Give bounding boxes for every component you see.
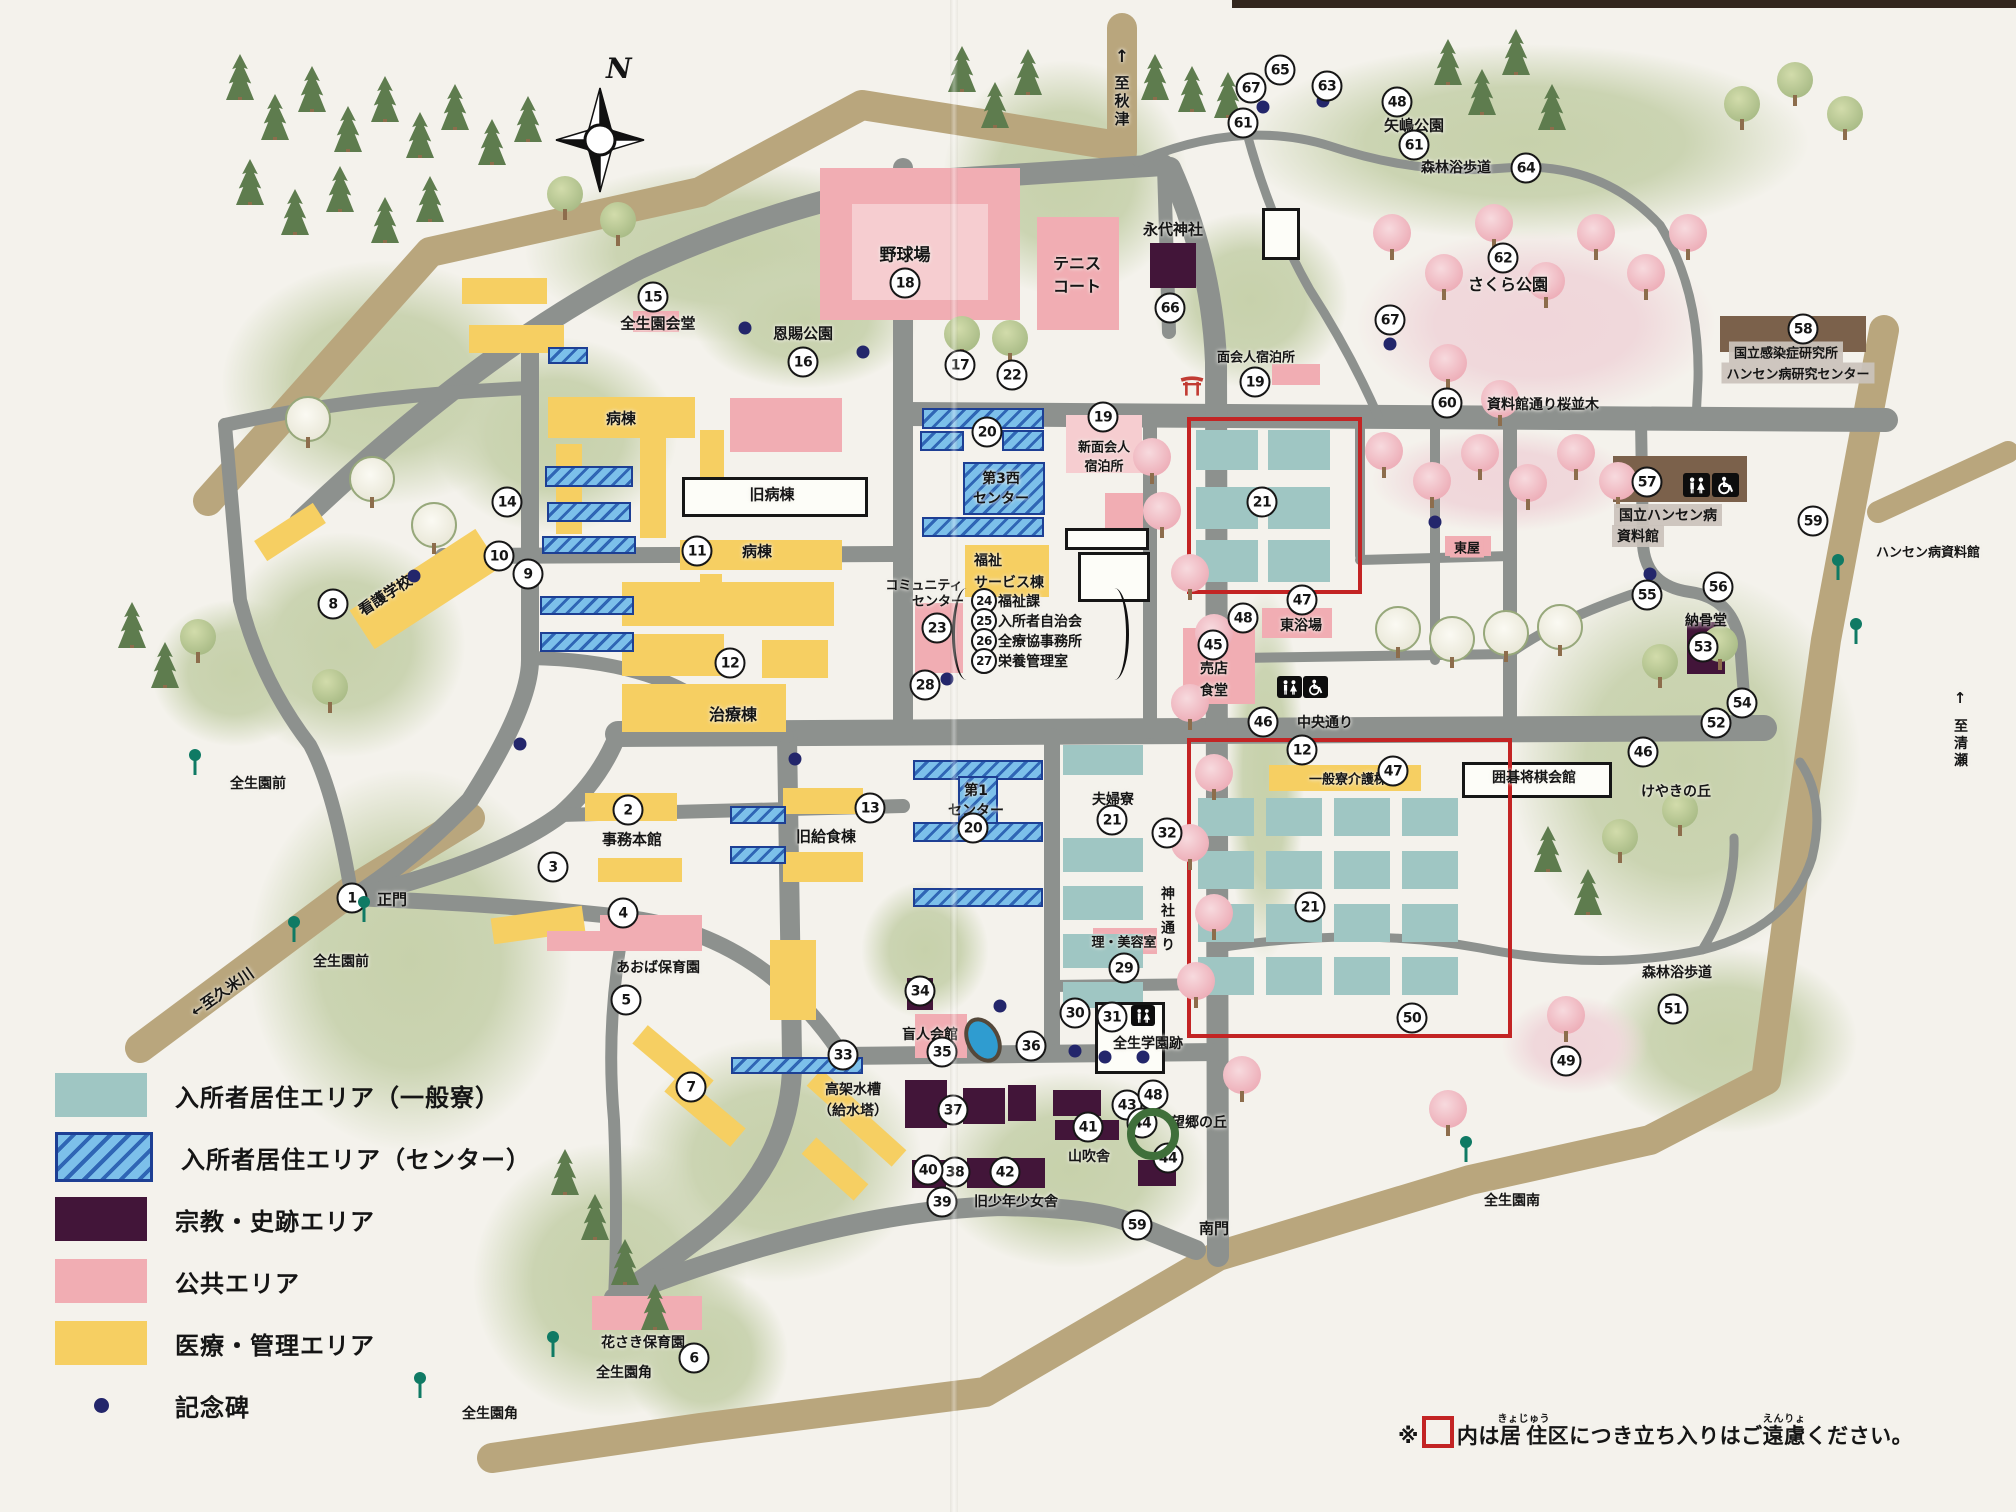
place-label: 東浴場: [1280, 615, 1322, 635]
building-stripe: [1002, 430, 1044, 451]
place-label: 病棟: [742, 541, 772, 562]
legend-swatch-pink: [55, 1259, 147, 1303]
round-tree-icon: [1642, 644, 1678, 680]
map-marker-51: 51: [1658, 994, 1689, 1025]
place-label: 囲碁将棋会館: [1492, 767, 1576, 787]
map-marker-2: 2: [613, 795, 644, 826]
round-tree-icon: [1777, 62, 1813, 98]
building-teal: [1063, 886, 1143, 920]
map-marker-47: 47: [1378, 756, 1409, 787]
round-tree-icon: [312, 669, 348, 705]
place-label: 納骨堂: [1685, 610, 1727, 630]
place-label: あおば保育園: [616, 957, 700, 977]
cherry-tree-icon: [1509, 464, 1547, 502]
building-stripe: [730, 806, 786, 824]
legend-swatch-dotbox: [55, 1383, 147, 1427]
place-label: 全生園角: [596, 1362, 652, 1382]
building-yellow: [770, 940, 816, 1020]
building-purple: [1150, 243, 1196, 288]
building-stripe: [542, 536, 636, 554]
legend: 入所者居住エリア（一般寮）入所者居住エリア（センター）宗教・史跡エリア公共エリア…: [55, 1072, 531, 1444]
map-marker-42: 42: [990, 1157, 1021, 1188]
place-label: けやきの丘: [1641, 781, 1711, 801]
map-marker-20: 20: [958, 813, 989, 844]
place-label: 旧給食棟: [796, 826, 856, 847]
building-stripe: [540, 596, 634, 615]
place-label: 至秋津: [1112, 75, 1133, 129]
place-label: ↑: [1115, 47, 1129, 67]
bus-stop-icon: [1460, 1136, 1472, 1162]
round-tree-icon: [1724, 86, 1760, 122]
building-purple: [1008, 1085, 1036, 1121]
map-marker-53: 53: [1688, 632, 1719, 663]
map-marker-54: 54: [1727, 688, 1758, 719]
map-marker-62: 62: [1488, 243, 1519, 274]
map-marker-19: 19: [1088, 402, 1119, 433]
map-marker-33: 33: [828, 1040, 859, 1071]
place-label: 旧少年少女舎: [974, 1191, 1058, 1211]
white-tree-icon: [349, 456, 395, 502]
place-label: 売店: [1200, 658, 1228, 678]
map-marker-67: 67: [1236, 73, 1267, 104]
legend-swatch-stripe: [55, 1132, 153, 1182]
cherry-tree-icon: [1365, 432, 1403, 470]
cherry-tree-icon: [1177, 962, 1215, 1000]
memorial-monument-dot: [739, 322, 752, 335]
cherry-tree-icon: [1413, 462, 1451, 500]
building-yellow: [783, 852, 863, 882]
compass-star-icon: [540, 80, 660, 200]
map-marker-21: 21: [1247, 487, 1278, 518]
place-label: 入所者自治会: [998, 611, 1082, 631]
map-marker-16: 16: [788, 347, 819, 378]
place-label: 東屋: [1450, 537, 1484, 558]
place-label: 福祉課: [998, 591, 1040, 611]
map-marker-10: 10: [484, 541, 515, 572]
place-label: 第1: [964, 780, 988, 800]
building-stripe: [730, 846, 786, 864]
building-yellow: [622, 684, 786, 732]
white-tree-icon: [1375, 606, 1421, 652]
memorial-monument-dot: [1137, 1051, 1150, 1064]
memorial-monument-dot: [408, 570, 421, 583]
place-label: 森林浴歩道: [1421, 157, 1491, 177]
place-label: 全生園会堂: [620, 313, 695, 334]
map-marker-12: 12: [715, 648, 746, 679]
wheelchair-icon: [1303, 676, 1328, 698]
place-label: 神社通り: [1157, 886, 1177, 954]
building-stripe: [540, 632, 634, 652]
bus-stop-icon: [547, 1331, 559, 1357]
place-label: 山吹舎: [1068, 1146, 1110, 1166]
map-marker-27: 27: [971, 648, 997, 674]
note-text: ください。: [1806, 1424, 1914, 1448]
memorial-wreath-hill-icon: [1127, 1108, 1179, 1160]
building-yellow: [622, 634, 724, 676]
white-tree-icon: [411, 502, 457, 548]
building-yellow: [783, 788, 863, 814]
map-marker-7: 7: [676, 1072, 707, 1103]
place-label: コート: [1053, 273, 1101, 297]
place-label: 国立感染症研究所: [1729, 342, 1843, 363]
memorial-monument-dot: [994, 1000, 1007, 1013]
map-marker-59: 59: [1798, 506, 1829, 537]
map-marker-21: 21: [1097, 805, 1128, 836]
compass-rose: N: [540, 52, 670, 202]
place-label: 南門: [1199, 1218, 1229, 1239]
building-stripe: [922, 517, 1044, 537]
map-marker-48: 48: [1382, 87, 1413, 118]
memorial-dot-icon: [94, 1398, 109, 1413]
legend-item: 入所者居住エリア（センター）: [55, 1134, 531, 1180]
map-marker-49: 49: [1551, 1046, 1582, 1077]
map-marker-19: 19: [1240, 367, 1271, 398]
building-yellow: [762, 640, 828, 678]
map-marker-22: 22: [997, 360, 1028, 391]
legend-item: 入所者居住エリア（一般寮）: [55, 1072, 531, 1118]
bus-stop-icon: [1850, 618, 1862, 644]
map-marker-6: 6: [679, 1343, 710, 1374]
map-marker-46: 46: [1628, 737, 1659, 768]
map-marker-52: 52: [1701, 708, 1732, 739]
cherry-tree-icon: [1577, 214, 1615, 252]
place-label: 事務本館: [602, 829, 662, 850]
map-marker-21: 21: [1295, 892, 1326, 923]
round-tree-icon: [992, 320, 1028, 356]
map-marker-13: 13: [855, 793, 886, 824]
memorial-monument-dot: [514, 738, 527, 751]
legend-label: 医療・管理エリア: [175, 1326, 375, 1361]
map-marker-30: 30: [1060, 998, 1091, 1029]
cherry-tree-icon: [1429, 1090, 1467, 1128]
map-marker-4: 4: [608, 898, 639, 929]
residential-area-note: ※内は居住きょじゅう区につき立ち入りはご遠慮えんりょください。: [1398, 1414, 1913, 1450]
map-marker-61: 61: [1228, 108, 1259, 139]
map-marker-31: 31: [1097, 1002, 1128, 1033]
place-label: 第3西: [982, 468, 1020, 488]
building-pink: [1272, 364, 1320, 385]
place-label: 花さき保育園: [601, 1332, 685, 1352]
cherry-tree-icon: [1195, 894, 1233, 932]
place-label: 高架水槽: [825, 1079, 881, 1099]
white-tree-icon: [1483, 610, 1529, 656]
map-marker-40: 40: [913, 1155, 944, 1186]
cherry-tree-icon: [1461, 434, 1499, 472]
place-label: 全生園南: [1484, 1190, 1540, 1210]
building-teal: [1063, 838, 1143, 872]
cherry-tree-icon: [1143, 492, 1181, 530]
map-marker-50: 50: [1397, 1003, 1428, 1034]
round-tree-icon: [180, 619, 216, 655]
cherry-tree-icon: [1557, 434, 1595, 472]
place-label: 全療協事務所: [998, 631, 1082, 651]
map-marker-28: 28: [910, 670, 941, 701]
map-marker-8: 8: [318, 589, 349, 620]
place-label: 治療棟: [709, 701, 757, 725]
memorial-monument-dot: [1099, 1051, 1112, 1064]
building-pink: [730, 398, 842, 452]
cherry-tree-icon: [1547, 996, 1585, 1034]
place-label: テニス: [1053, 250, 1101, 274]
place-label: 資料館: [1612, 525, 1664, 547]
legend-label: 記念碑: [175, 1388, 250, 1423]
map-marker-67: 67: [1375, 305, 1406, 336]
map-marker-66: 66: [1155, 293, 1186, 324]
place-label: 全生園前: [313, 951, 369, 971]
map-marker-9: 9: [513, 559, 544, 590]
memorial-monument-dot: [1069, 1045, 1082, 1058]
building-white: [1262, 208, 1300, 260]
legend-swatch-purple: [55, 1197, 147, 1241]
map-marker-58: 58: [1788, 314, 1819, 345]
bus-stop-icon: [358, 896, 370, 922]
red-box-glyph: [1422, 1416, 1454, 1448]
place-label: 理・美容室: [1091, 932, 1156, 951]
bus-stop-icon: [1832, 554, 1844, 580]
map-marker-23: 23: [922, 613, 953, 644]
memorial-monument-dot: [1257, 101, 1270, 114]
map-marker-64: 64: [1511, 153, 1542, 184]
round-tree-icon: [600, 202, 636, 238]
map-marker-5: 5: [611, 985, 642, 1016]
map-marker-61: 61: [1399, 130, 1430, 161]
building-stripe: [545, 466, 633, 487]
building-yellow: [462, 278, 547, 304]
legend-label: 宗教・史跡エリア: [175, 1202, 375, 1237]
white-tree-icon: [1537, 604, 1583, 650]
legend-item: 公共エリア: [55, 1258, 531, 1304]
map-marker-36: 36: [1016, 1031, 1047, 1062]
cherry-tree-icon: [1133, 438, 1171, 476]
map-marker-12: 12: [1287, 735, 1318, 766]
place-label: 野球場: [880, 241, 931, 266]
map-marker-45: 45: [1198, 630, 1229, 661]
map-marker-34: 34: [905, 976, 936, 1007]
place-label: 病棟: [606, 408, 636, 429]
place-label: 福祉: [974, 550, 1002, 570]
map-marker-20: 20: [972, 417, 1003, 448]
place-label: ハンセン病研究センター: [1721, 363, 1874, 384]
torii-icon: [1180, 376, 1204, 396]
place-label: 恩賜公園: [773, 323, 833, 344]
place-label: ↑: [1954, 689, 1967, 707]
place-label: 永代神社: [1143, 219, 1203, 240]
map-marker-47: 47: [1287, 585, 1318, 616]
place-label: 全生学園跡: [1113, 1033, 1183, 1053]
cherry-tree-icon: [1475, 204, 1513, 242]
place-label: 森林浴歩道: [1642, 962, 1712, 982]
place-label: 至清瀬: [1950, 719, 1970, 770]
building-stripe: [548, 347, 588, 364]
cherry-tree-icon: [1669, 214, 1707, 252]
legend-swatch-teal: [55, 1073, 147, 1117]
legend-item: 宗教・史跡エリア: [55, 1196, 531, 1242]
cherry-tree-icon: [1425, 254, 1463, 292]
map-marker-15: 15: [638, 282, 669, 313]
map-marker-3: 3: [538, 852, 569, 883]
legend-label: 入所者居住エリア（センター）: [181, 1140, 531, 1175]
cherry-tree-icon: [1373, 214, 1411, 252]
cherry-tree-icon: [1627, 254, 1665, 292]
cherry-tree-icon: [1171, 554, 1209, 592]
bus-stop-icon: [189, 749, 201, 775]
building-purple: [963, 1088, 1005, 1124]
bus-stop-icon: [288, 916, 300, 942]
building-yellow: [598, 858, 682, 882]
building-teal: [1063, 745, 1143, 775]
map-marker-48: 48: [1138, 1080, 1169, 1111]
memorial-monument-dot: [857, 346, 870, 359]
building-white: [1065, 528, 1149, 550]
note-ruby-text: 遠慮えんりょ: [1763, 1424, 1806, 1448]
map-marker-46: 46: [1248, 707, 1279, 738]
map-marker-56: 56: [1703, 572, 1734, 603]
round-tree-icon: [1827, 96, 1863, 132]
map-marker-18: 18: [890, 268, 921, 299]
place-label: 一般寮介護棟: [1309, 769, 1387, 788]
memorial-monument-dot: [1384, 338, 1397, 351]
place-label: 新面会人: [1078, 437, 1130, 456]
cherry-tree-icon: [1223, 1056, 1261, 1094]
legend-item: 記念碑: [55, 1382, 531, 1428]
building-stripe: [913, 888, 1043, 907]
map-marker-57: 57: [1632, 467, 1663, 498]
note-text: 内は: [1457, 1424, 1500, 1448]
place-label: 資料館通り桜並木: [1487, 394, 1599, 414]
building-pink: [547, 931, 601, 951]
map-marker-60: 60: [1432, 388, 1463, 419]
map-marker-29: 29: [1109, 953, 1140, 984]
legend-label: 入所者居住エリア（一般寮）: [175, 1078, 500, 1113]
place-label: 正門: [377, 889, 407, 910]
white-tree-icon: [1429, 616, 1475, 662]
map-marker-41: 41: [1073, 1112, 1104, 1143]
cherry-tree-icon: [1195, 754, 1233, 792]
list-bracket-right: [1100, 588, 1129, 680]
map-marker-55: 55: [1632, 580, 1663, 611]
map-page: N 12345678910111212131415161718191920202…: [0, 0, 2016, 1512]
toilet-icon: [1277, 676, 1302, 698]
map-marker-11: 11: [682, 536, 713, 567]
place-label: 国立ハンセン病: [1614, 504, 1722, 526]
place-label: 面会人宿泊所: [1217, 347, 1295, 366]
map-marker-63: 63: [1312, 71, 1343, 102]
map-marker-59: 59: [1122, 1210, 1153, 1241]
legend-item: 医療・管理エリア: [55, 1320, 531, 1366]
memorial-monument-dot: [1429, 516, 1442, 529]
white-tree-icon: [285, 396, 331, 442]
place-label: （給水塔）: [818, 1100, 888, 1120]
place-label: 食堂: [1200, 680, 1228, 700]
place-label: 宿泊所: [1084, 456, 1123, 475]
wheelchair-icon: [1712, 473, 1739, 497]
place-label: 全生園前: [230, 773, 286, 793]
note-text: 区につき立ち入りはご: [1548, 1424, 1763, 1448]
building-stripe: [547, 502, 631, 522]
map-marker-14: 14: [492, 487, 523, 518]
legend-label: 公共エリア: [175, 1264, 300, 1299]
map-marker-65: 65: [1265, 55, 1296, 86]
building-yellow: [622, 582, 834, 626]
toilet-icon: [1683, 473, 1710, 497]
place-label: さくら公園: [1468, 271, 1548, 295]
memorial-monument-dot: [789, 753, 802, 766]
legend-swatch-yellow: [55, 1321, 147, 1365]
cherry-tree-icon: [1429, 344, 1467, 382]
toilet-icon: [1131, 1005, 1155, 1026]
place-label: 栄養管理室: [998, 651, 1068, 671]
note-prefix: ※: [1398, 1424, 1419, 1448]
place-label: 旧病棟: [749, 484, 794, 505]
photo-edge: [1232, 0, 2016, 8]
place-label: ハンセン病資料館: [1876, 542, 1980, 561]
place-label: 望郷の丘: [1171, 1112, 1227, 1132]
map-marker-48: 48: [1228, 603, 1259, 634]
note-ruby-text: 居住きょじゅう: [1500, 1424, 1548, 1448]
place-label: 中央通り: [1297, 712, 1353, 732]
building-yellow: [640, 438, 666, 538]
round-tree-icon: [1602, 819, 1638, 855]
map-marker-32: 32: [1152, 818, 1183, 849]
paper-fold-line: [950, 0, 958, 1512]
place-label: センター: [973, 488, 1029, 508]
